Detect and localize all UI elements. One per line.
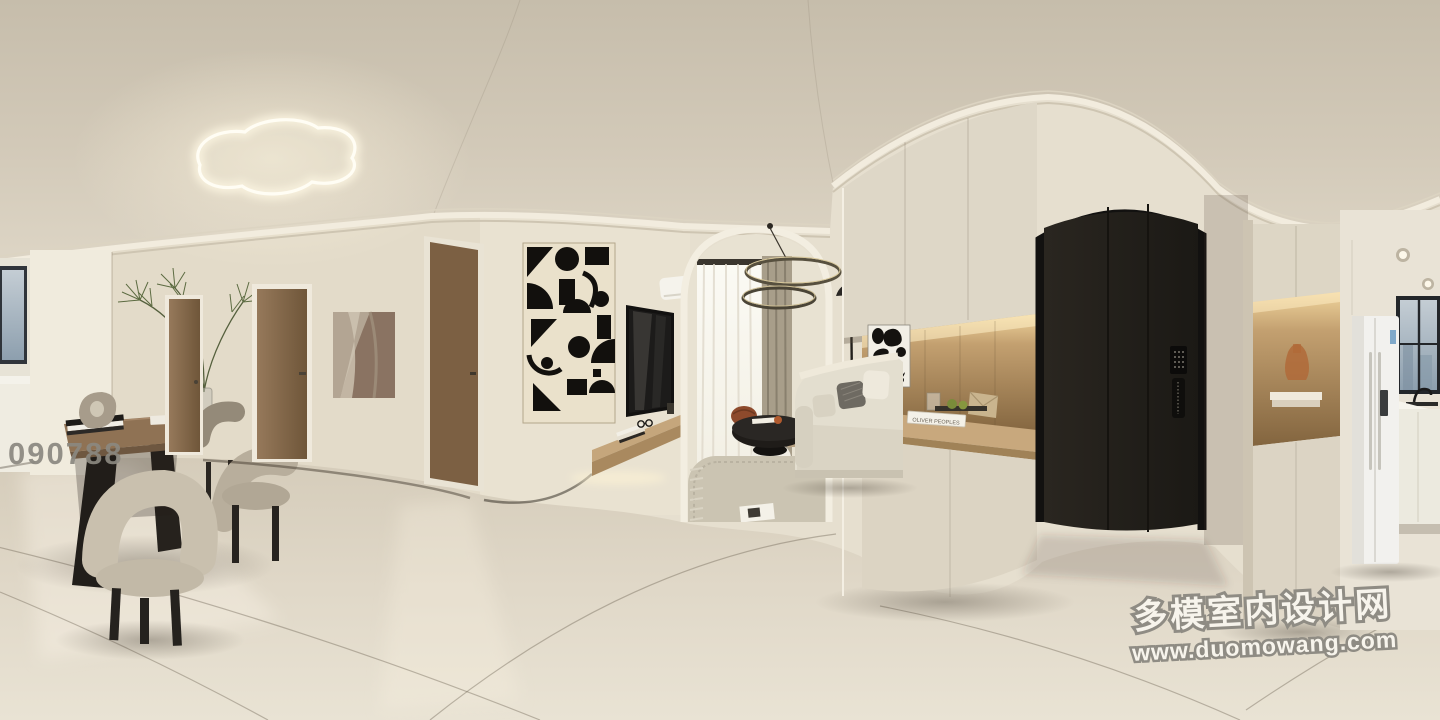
envelope-decor bbox=[968, 392, 998, 418]
textured-art bbox=[333, 312, 395, 398]
panorama-canvas: OLIVER PEOPLES bbox=[0, 0, 1440, 720]
right-niche bbox=[1253, 292, 1340, 446]
sofa-armrest bbox=[795, 406, 813, 468]
kitchen-window bbox=[1396, 296, 1440, 394]
fridge-sticker bbox=[1390, 330, 1396, 344]
tv bbox=[626, 305, 674, 417]
kitchen-base-cabinets bbox=[1394, 409, 1440, 524]
kitchen-counter-left bbox=[0, 376, 30, 384]
watermark-site: 多模室内设计网 www.duomowang.com bbox=[1129, 585, 1398, 667]
niche-books bbox=[1270, 392, 1322, 400]
watermark-id: 090788 bbox=[8, 436, 123, 472]
kitchen-right bbox=[1330, 210, 1440, 630]
smart-lock bbox=[1170, 346, 1187, 418]
door-side-shadow bbox=[1204, 195, 1248, 545]
door-3-corner bbox=[424, 236, 484, 492]
fridge-control-panel bbox=[1380, 390, 1388, 416]
fridge bbox=[1352, 316, 1399, 564]
cloud-ceiling-light bbox=[198, 120, 355, 194]
door-2 bbox=[252, 284, 312, 462]
door-1 bbox=[165, 295, 203, 455]
geometric-art bbox=[523, 243, 615, 423]
sofa bbox=[782, 354, 918, 498]
